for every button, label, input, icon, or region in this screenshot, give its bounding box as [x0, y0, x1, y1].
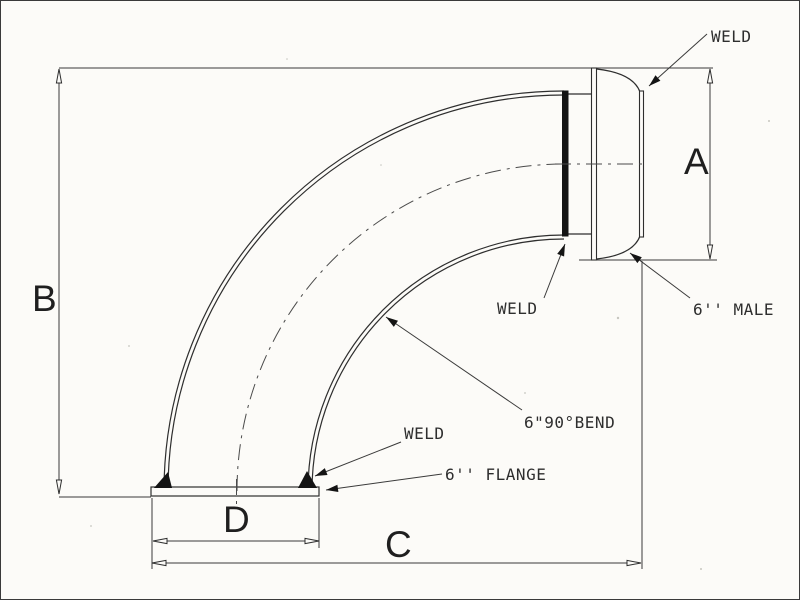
callout-weld-top: WELD — [649, 27, 752, 86]
bend-inner-wall-inner-line — [312, 239, 564, 491]
dim-c-label: C — [385, 524, 412, 565]
weld-middle-label: WELD — [497, 299, 538, 318]
callout-male: 6'' MALE — [630, 253, 774, 319]
dimension-a: A — [684, 69, 710, 259]
callout-bend: 6"90°BEND — [386, 317, 615, 432]
dim-d-label: D — [223, 499, 250, 540]
callout-weld-bottom: WELD — [315, 424, 445, 476]
bend-outer-wall-inner-line — [168, 95, 564, 491]
dimension-d: D — [153, 499, 319, 541]
dimension-b: B — [32, 69, 59, 494]
weld-bottom-label: WELD — [404, 424, 445, 443]
weld-fillets — [154, 471, 317, 488]
dim-b-label: B — [32, 278, 57, 319]
bend-label: 6"90°BEND — [524, 413, 615, 432]
flange — [151, 487, 319, 496]
bend-outer-wall — [164, 91, 564, 491]
callout-flange: 6'' FLANGE — [326, 465, 546, 490]
weld-fillet-left — [154, 472, 172, 488]
male-coupling-top-curve — [597, 69, 641, 92]
weld-top-label: WELD — [711, 27, 752, 46]
dim-a-label: A — [684, 141, 709, 182]
weld-fillet-right — [298, 471, 317, 488]
drawing-sheet: A B D C WELD WELD WELD 6"90°BEND 6'' FLA… — [0, 0, 800, 600]
centerlines — [237, 164, 644, 504]
flange-label: 6'' FLANGE — [445, 465, 546, 484]
drawing-canvas: A B D C WELD WELD WELD 6"90°BEND 6'' FLA… — [1, 1, 799, 599]
callout-weld-middle: WELD — [497, 244, 565, 318]
male-label: 6'' MALE — [693, 300, 774, 319]
